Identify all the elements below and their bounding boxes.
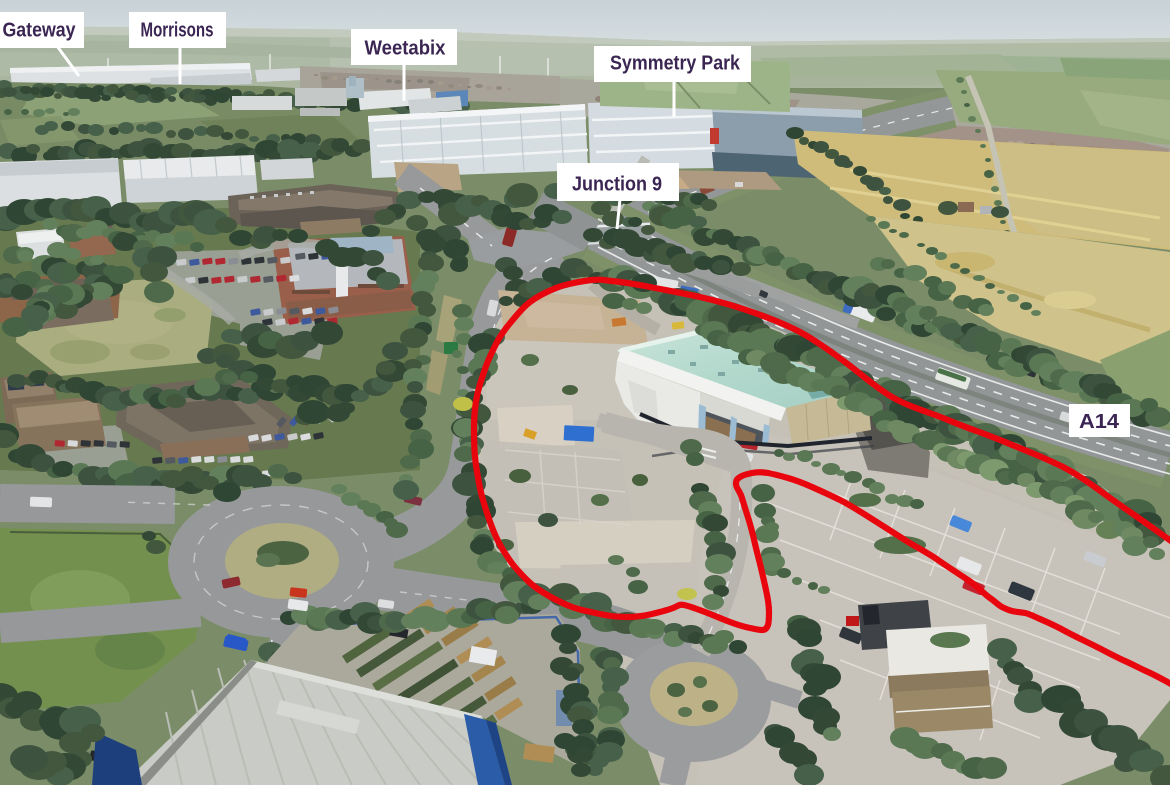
svg-text:Weetabix: Weetabix bbox=[365, 38, 446, 60]
svg-text:Morrisons: Morrisons bbox=[141, 20, 214, 42]
svg-text:Gateway: Gateway bbox=[3, 20, 77, 42]
svg-text:Symmetry Park: Symmetry Park bbox=[610, 53, 741, 75]
svg-text:A14: A14 bbox=[1079, 411, 1120, 433]
svg-text:Junction 9: Junction 9 bbox=[572, 174, 662, 196]
